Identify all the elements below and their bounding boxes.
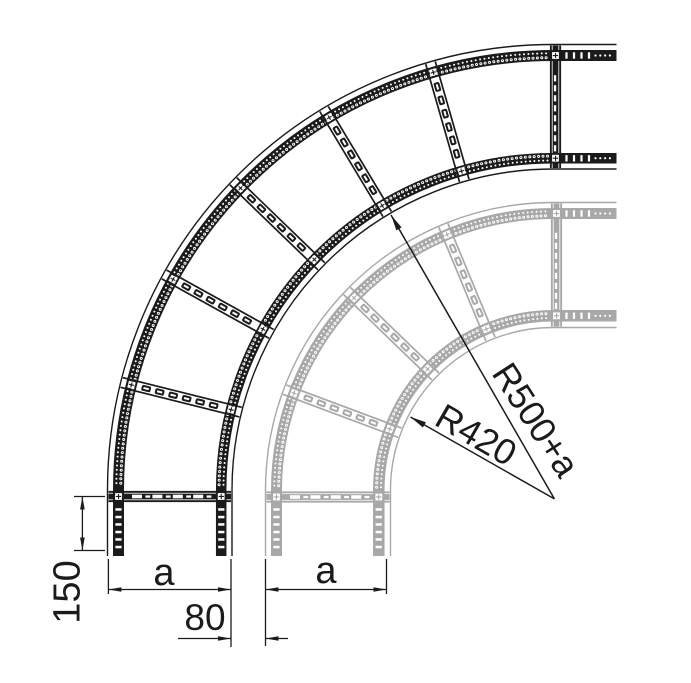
svg-text:a: a [153,552,175,594]
svg-text:80: 80 [184,597,225,638]
svg-text:a: a [315,550,337,592]
svg-text:150: 150 [47,560,89,623]
